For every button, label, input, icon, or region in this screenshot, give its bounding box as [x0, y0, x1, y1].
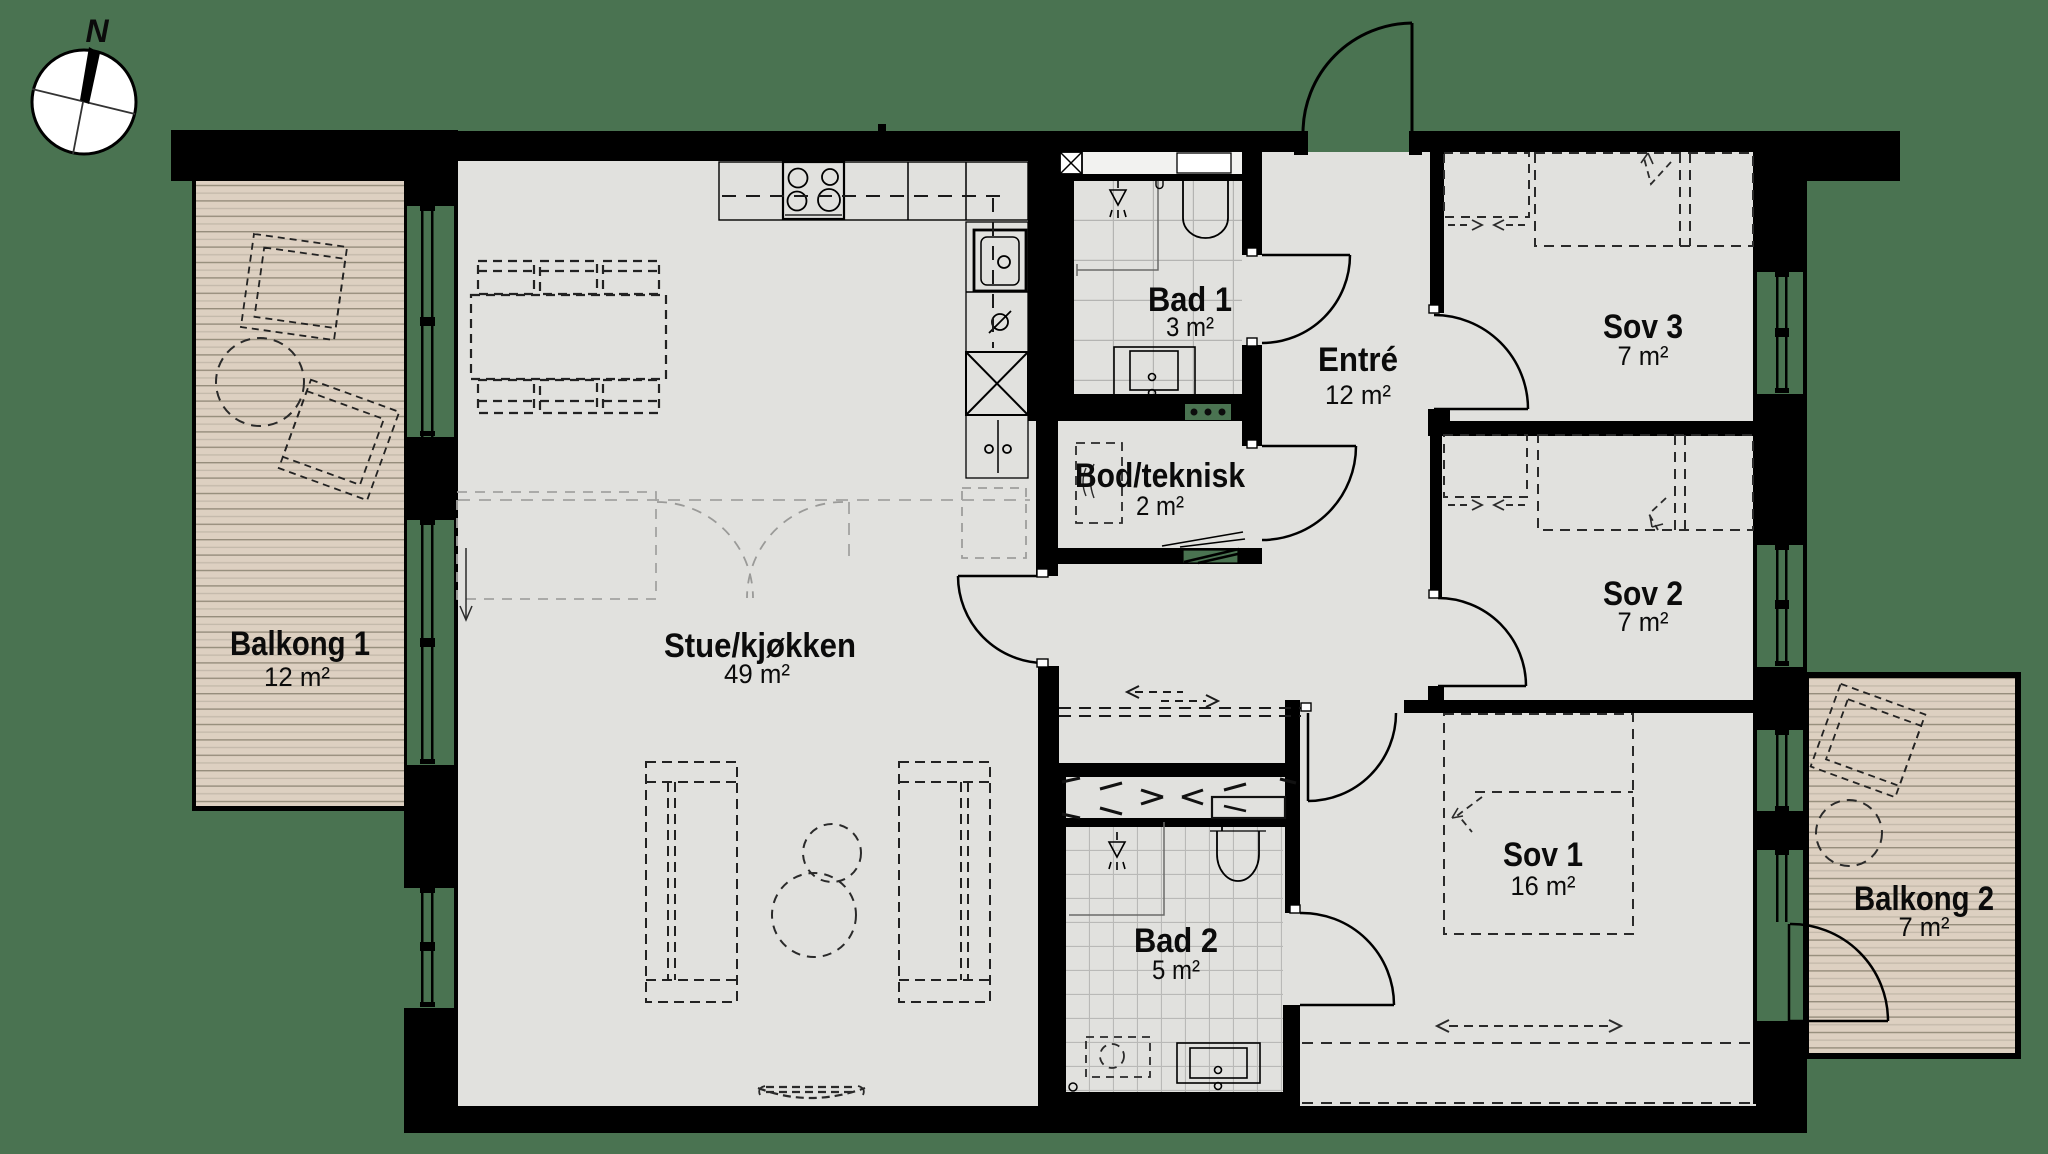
svg-text:N: N — [85, 13, 109, 49]
svg-text:Entré: Entré — [1318, 341, 1398, 379]
svg-text:49 m²: 49 m² — [724, 659, 790, 689]
svg-text:16 m²: 16 m² — [1511, 871, 1576, 901]
svg-text:Bod/teknisk: Bod/teknisk — [1075, 457, 1245, 495]
svg-text:Balkong 1: Balkong 1 — [230, 625, 370, 663]
svg-text:12 m²: 12 m² — [264, 662, 330, 692]
svg-text:3 m²: 3 m² — [1166, 312, 1214, 342]
svg-text:7 m²: 7 m² — [1899, 912, 1950, 942]
svg-text:Sov 1: Sov 1 — [1503, 836, 1583, 874]
svg-text:2 m²: 2 m² — [1136, 491, 1184, 521]
svg-text:7 m²: 7 m² — [1618, 341, 1669, 371]
svg-text:12 m²: 12 m² — [1325, 380, 1391, 410]
svg-text:5 m²: 5 m² — [1152, 955, 1200, 985]
svg-text:7 m²: 7 m² — [1618, 607, 1669, 637]
